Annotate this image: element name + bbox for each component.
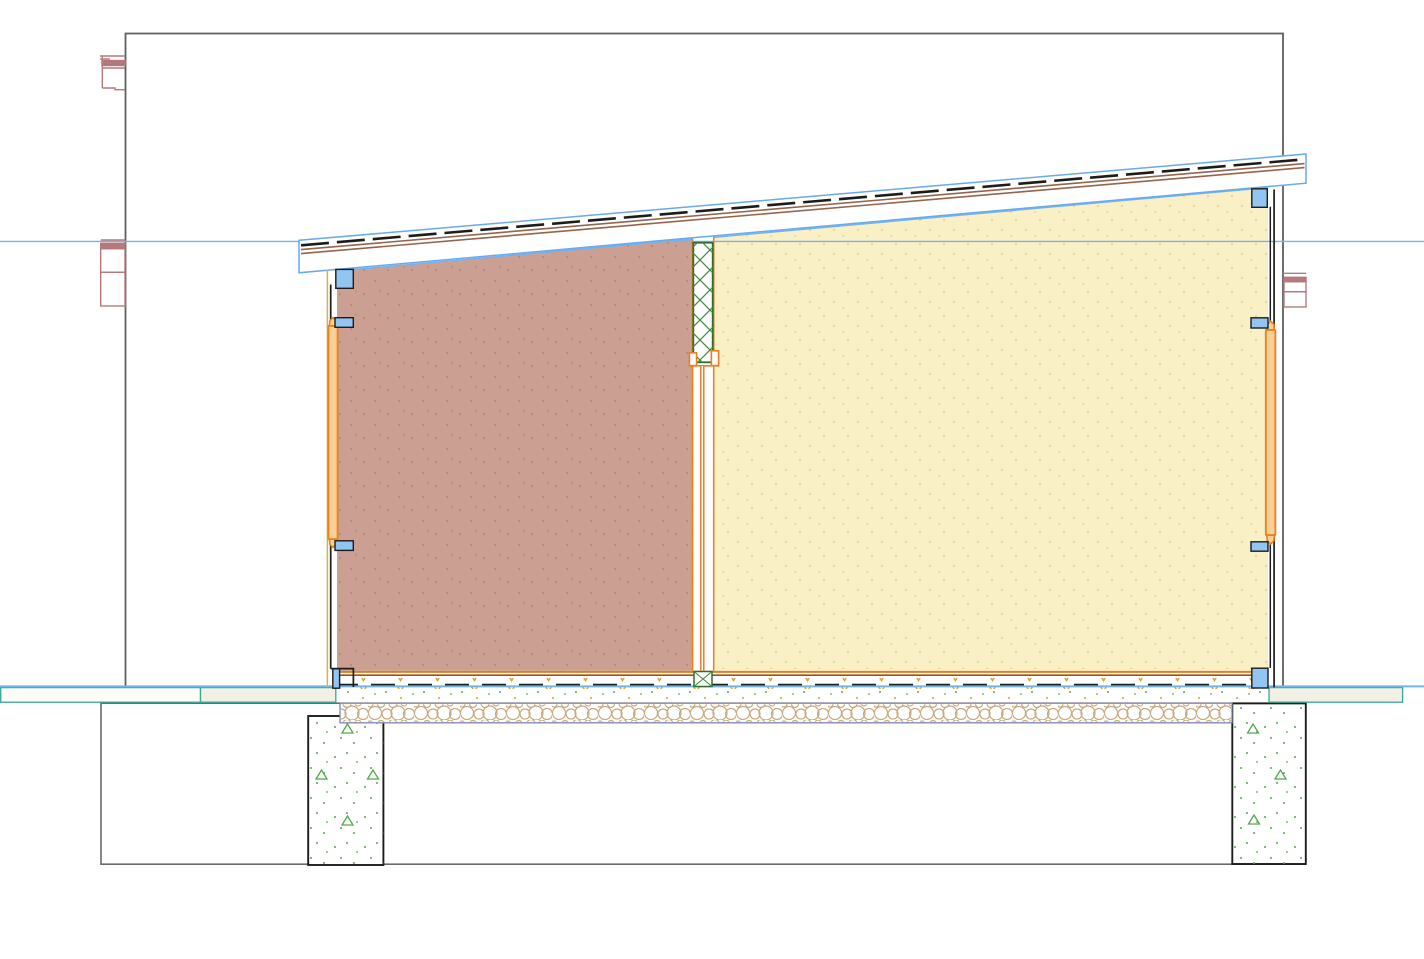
- room-right-texture: [713, 188, 1268, 671]
- adjacent-structure-mid-left: [101, 240, 125, 306]
- room-left[interactable]: [337, 239, 693, 671]
- concrete-dot-texture: [308, 716, 383, 865]
- terrain-band-far-left[interactable]: [1, 688, 201, 703]
- concrete-dot-texture: [1232, 703, 1306, 864]
- door-threshold[interactable]: [694, 672, 712, 687]
- adjacent-structure-right: [1283, 273, 1306, 307]
- window-frame-right[interactable]: [1266, 321, 1276, 544]
- anchor-marker: [335, 541, 353, 551]
- adjacent-structure-top-left: [100, 56, 125, 90]
- column-crosshatch: [693, 243, 712, 363]
- window-frame-left[interactable]: [328, 318, 337, 548]
- terrain-band-left[interactable]: [201, 688, 336, 703]
- anchor-marker: [336, 269, 354, 288]
- foundation-pier-left[interactable]: [308, 716, 383, 865]
- anchor-marker: [1252, 189, 1268, 208]
- partition-column[interactable]: [693, 243, 712, 363]
- room-left-texture: [337, 239, 693, 671]
- anchor-marker: [1251, 318, 1268, 328]
- section-view-canvas[interactable]: [0, 0, 1424, 959]
- anchor-marker: [333, 669, 340, 688]
- anchor-marker: [335, 318, 353, 328]
- gravel-layer[interactable]: [340, 703, 1232, 723]
- anchor-marker: [1251, 542, 1268, 551]
- door-leaf[interactable]: [701, 366, 704, 671]
- foundation-footer[interactable]: [101, 703, 1305, 864]
- subfloor-speckle: [342, 689, 1266, 702]
- anchor-marker: [1252, 668, 1268, 688]
- room-right[interactable]: [713, 188, 1268, 671]
- foundation-pier-right[interactable]: [1232, 703, 1306, 864]
- pebble-texture: [341, 704, 1231, 722]
- terrain-band-right[interactable]: [1269, 688, 1403, 703]
- section-drawing: [0, 0, 1424, 959]
